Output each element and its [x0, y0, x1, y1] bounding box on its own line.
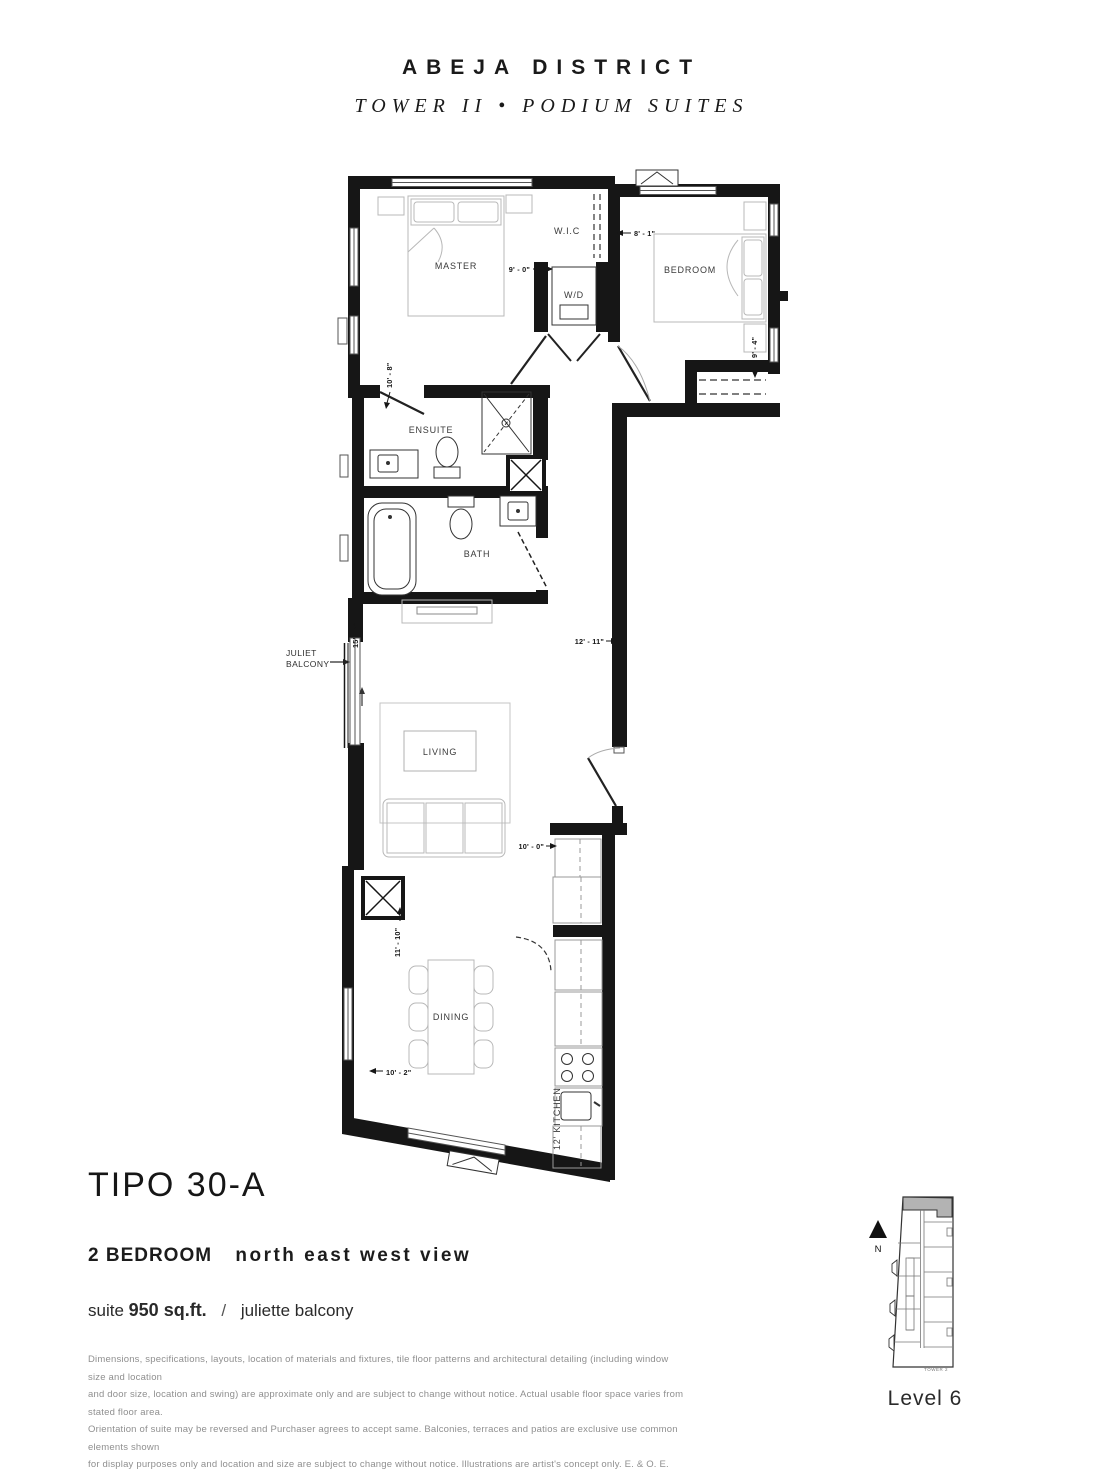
plan-type-line: 2 BEDROOM north east west view — [88, 1245, 728, 1267]
svg-text:11' - 10": 11' - 10" — [393, 928, 402, 957]
disclaimer-line: and door size, location and swing) are a… — [88, 1386, 688, 1421]
brand-subtitle: TOWER II • PODIUM SUITES — [0, 95, 1103, 118]
dim-bedroom-width: 8' - 1" — [616, 229, 655, 238]
ensuite-vanity-sink — [370, 450, 418, 478]
stove — [555, 1048, 602, 1086]
floor-plan: MASTER W.I.C BEDROOM W/D ENSUITE BATH LI… — [270, 150, 810, 1210]
dim-master-width: 10' - 8" — [384, 363, 394, 409]
svg-text:9' - 0": 9' - 0" — [509, 265, 530, 274]
disclaimer: Dimensions, specifications, layouts, loc… — [88, 1351, 688, 1474]
svg-text:8' - 1": 8' - 1" — [634, 229, 655, 238]
svg-text:12' - 11": 12' - 11" — [575, 637, 604, 646]
dim-kitchen-width: 10' - 0" — [519, 842, 557, 851]
suite-label: suite — [88, 1301, 124, 1320]
bath-toilet — [448, 496, 474, 539]
svg-text:10' - 2": 10' - 2" — [386, 1068, 411, 1077]
svg-text:10' - 8": 10' - 8" — [385, 363, 394, 388]
label-wic: W.I.C — [554, 226, 580, 236]
ensuite-toilet — [434, 437, 460, 478]
disclaimer-line: Orientation of suite may be reversed and… — [88, 1421, 688, 1456]
label-dining: DINING — [433, 1012, 469, 1022]
master-bed — [408, 196, 504, 316]
disclaimer-line: Dimensions, specifications, layouts, loc… — [88, 1351, 688, 1386]
dim-dining-width: 10' - 2" — [369, 1068, 411, 1077]
page-header: ABEJA DISTRICT TOWER II • PODIUM SUITES — [0, 56, 1103, 118]
svg-text:15' - 7": 15' - 7" — [351, 623, 360, 648]
dim-living-width: 12' - 11" — [575, 637, 618, 646]
key-plan: N — [850, 1190, 1000, 1425]
shower — [482, 392, 531, 454]
north-arrow-icon: N — [869, 1220, 887, 1255]
label-kitchen: 12' KITCHEN — [552, 1087, 562, 1150]
juliet-balcony-callout: JULIET BALCONY — [286, 648, 350, 669]
juliet-label-1: JULIET — [286, 648, 317, 658]
juliet-balcony-window — [345, 638, 361, 748]
balcony-type: juliette balcony — [241, 1301, 353, 1320]
svg-text:N: N — [875, 1244, 882, 1255]
suite-area: 950 sq.ft. — [129, 1300, 207, 1320]
suite-info-line: suite 950 sq.ft. / juliette balcony — [88, 1300, 728, 1321]
bathtub — [368, 503, 416, 595]
view-direction: north east west view — [235, 1245, 471, 1266]
kitchen-sink — [555, 1088, 602, 1126]
juliet-label-2: BALCONY — [286, 659, 329, 669]
label-wd: W/D — [564, 290, 584, 300]
label-living: LIVING — [423, 747, 457, 757]
walls — [342, 176, 788, 1182]
master-nightstands — [378, 195, 532, 215]
keyplan-caption: TOWER 2 — [924, 1367, 948, 1372]
living-rug — [380, 703, 510, 823]
building-footprint — [889, 1197, 953, 1367]
svg-text:9' - 4": 9' - 4" — [750, 337, 759, 358]
brand-title: ABEJA DISTRICT — [0, 56, 1103, 80]
separator: / — [221, 1301, 226, 1320]
disclaimer-line: for display purposes only and location a… — [88, 1456, 688, 1474]
wic-closet-rod — [594, 194, 600, 258]
plan-name: TIPO 30-A — [88, 1166, 728, 1205]
bedroom-nightstands — [744, 202, 766, 352]
level-label: Level 6 — [888, 1387, 963, 1410]
label-ensuite: ENSUITE — [409, 425, 454, 435]
label-master: MASTER — [435, 261, 477, 271]
label-bedroom: BEDROOM — [664, 265, 716, 275]
plan-details: TIPO 30-A 2 BEDROOM north east west view… — [88, 1166, 728, 1474]
label-bath: BATH — [464, 549, 491, 559]
bath-sink — [500, 496, 536, 526]
sofa — [383, 799, 505, 857]
bedroom-bed — [654, 234, 766, 322]
bedroom-count: 2 BEDROOM — [88, 1245, 212, 1266]
svg-text:10' - 0": 10' - 0" — [519, 842, 544, 851]
bedroom-closet — [699, 380, 766, 394]
